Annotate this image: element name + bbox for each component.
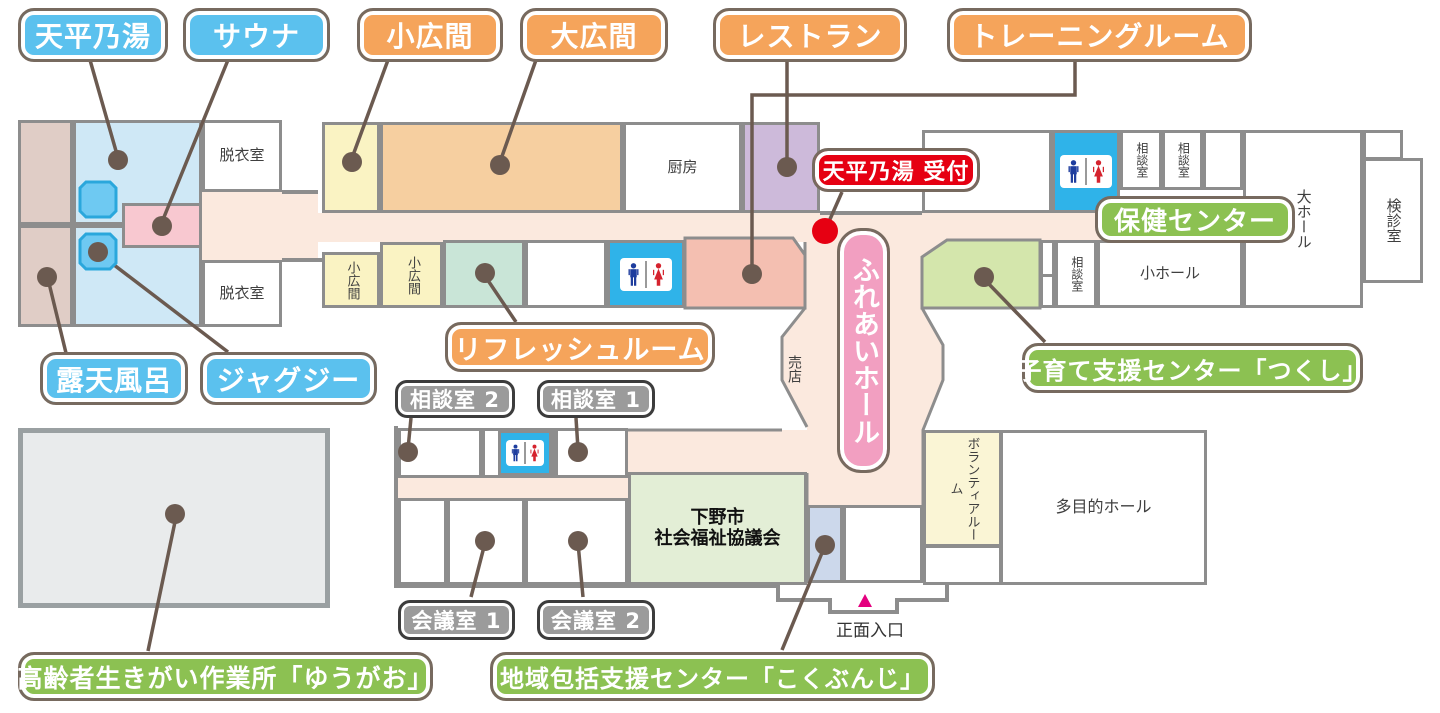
- restroom-icon: [506, 440, 544, 466]
- callout-reception: 天平乃湯 受付: [812, 148, 980, 192]
- man-icon: [510, 442, 521, 464]
- room-kitchen: 厨房: [623, 122, 742, 213]
- room-chiiki-center: [807, 505, 843, 583]
- room-workshop-yugao: [18, 428, 330, 608]
- room-soudan-b: 相談室: [1162, 130, 1203, 190]
- callout-refresh-room: リフレッシュルーム: [445, 322, 715, 372]
- room-refresh: [443, 240, 525, 308]
- room-shakyo: 下野市 社会福祉協議会: [628, 472, 807, 585]
- restroom-icon: [620, 258, 672, 291]
- divider: [645, 261, 647, 288]
- restroom-central: [607, 240, 685, 308]
- room-extension: [1363, 130, 1403, 160]
- callout-fureai-hall: ふれあいホール: [837, 228, 890, 473]
- room-unlabeled-1: [525, 240, 607, 308]
- room-kaigi2: [525, 498, 628, 585]
- room-dressing-1: 脱衣室: [202, 120, 282, 192]
- woman-icon: [1091, 158, 1106, 185]
- divider: [1085, 158, 1087, 185]
- room-kohiroma-b: 小広間: [380, 242, 443, 308]
- callout-restaurant: レストラン: [713, 8, 907, 62]
- room-unlabeled-3: [1203, 130, 1243, 190]
- callout-chiiki-center: 地域包括支援センター「こくぶんじ」: [490, 652, 935, 701]
- man-icon: [626, 261, 641, 288]
- room-soudan1: [555, 428, 628, 478]
- shakyo-line1: 下野市: [655, 508, 781, 529]
- room-kohiroma-main: [322, 122, 380, 213]
- room-checkup: 検診室: [1363, 158, 1423, 283]
- callout-ohiroma: 大広間: [520, 8, 668, 62]
- corridor-mid-strip: [395, 478, 628, 498]
- callout-sauna: サウナ: [183, 8, 330, 62]
- room-training: [685, 238, 805, 308]
- room-sho-hall: 小ホール: [1097, 240, 1243, 308]
- room-unlabeled-6: [923, 545, 1002, 585]
- room-open-air-bath-upper: [18, 120, 73, 225]
- woman-icon: [651, 261, 666, 288]
- corridor-mid-block: [628, 430, 807, 473]
- room-sauna: [122, 203, 202, 248]
- restroom-icon: [1060, 155, 1112, 188]
- woman-icon: [529, 442, 540, 464]
- room-soudan-a: 相談室: [1120, 130, 1162, 190]
- callout-kohiroma: 小広間: [357, 8, 503, 62]
- room-soudan2: [398, 428, 482, 478]
- callout-soudan1: 相談室 1: [537, 380, 655, 418]
- shop-label: 売店: [783, 348, 805, 390]
- callout-kosodate-center: 子育て支援センター「つくし」: [1022, 343, 1363, 393]
- callout-tenpyo-no-yu: 天平乃湯: [18, 8, 168, 62]
- shakyo-line2: 社会福祉協議会: [655, 529, 781, 550]
- callout-jacuzzi: ジャグジー: [200, 352, 377, 405]
- callout-sagyousho: 高齢者生きがい作業所「ゆうがお」: [18, 652, 433, 701]
- room-unlabeled-5: [843, 505, 923, 583]
- main-entrance-label: 正面入口: [820, 616, 920, 640]
- room-small-a: [1040, 240, 1055, 277]
- room-volunteer: ボランティアルーム: [923, 430, 1002, 547]
- room-soudan-c: 相談室: [1055, 240, 1097, 308]
- callout-rotenburo: 露天風呂: [40, 352, 188, 405]
- floor-map: 脱衣室 脱衣室 厨房 小広間 小広間 相談室 相談室 大ホール 検診室 相談室 …: [0, 0, 1440, 713]
- room-restaurant: [742, 122, 820, 213]
- room-kaigi1: [447, 498, 525, 585]
- restroom-south: [498, 430, 552, 476]
- callout-hoken-center: 保健センター: [1095, 196, 1295, 243]
- room-dressing-2: 脱衣室: [202, 260, 282, 327]
- room-small-b: [1040, 274, 1055, 308]
- room-ohiroma: [380, 122, 623, 213]
- corridor-left: [202, 192, 318, 260]
- callout-soudan2: 相談室 2: [395, 380, 515, 418]
- room-kosodate-center: [922, 240, 1040, 308]
- entrance-porch: [778, 583, 947, 612]
- man-icon: [1066, 158, 1081, 185]
- room-unlabeled-4: [398, 498, 447, 585]
- callout-training-room: トレーニングルーム: [947, 8, 1252, 62]
- divider: [524, 442, 526, 464]
- room-open-air-bath-lower: [18, 225, 73, 327]
- room-tamokuteki-hall: 多目的ホール: [1000, 430, 1207, 585]
- callout-kaigi1: 会議室 1: [398, 600, 515, 640]
- callout-kaigi2: 会議室 2: [537, 600, 655, 640]
- room-kohiroma-a: 小広間: [322, 252, 380, 308]
